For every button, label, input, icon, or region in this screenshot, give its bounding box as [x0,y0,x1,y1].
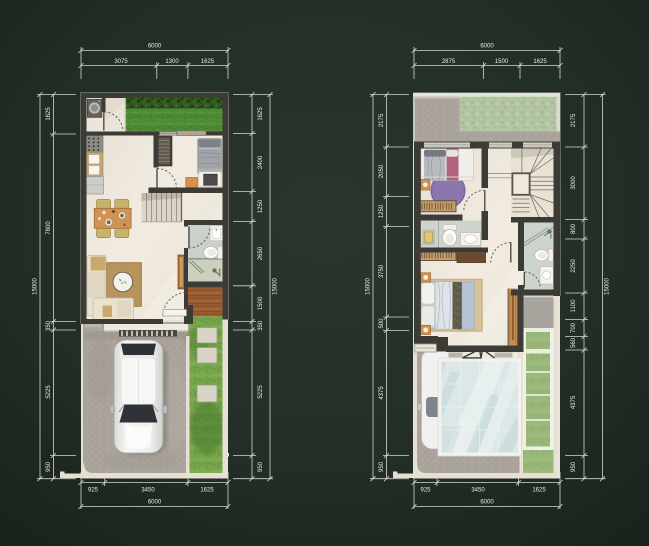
svg-text:1500: 1500 [495,59,509,65]
svg-text:560: 560 [571,337,577,348]
svg-text:2250: 2250 [571,259,577,273]
svg-text:2650: 2650 [258,246,264,260]
svg-text:2175: 2175 [571,113,577,127]
svg-text:1250: 1250 [379,204,385,218]
svg-text:5225: 5225 [258,385,264,399]
svg-text:3450: 3450 [141,488,155,494]
svg-text:3450: 3450 [471,488,485,494]
svg-text:1625: 1625 [46,107,52,121]
svg-text:1500: 1500 [258,296,264,310]
svg-text:6000: 6000 [148,500,162,506]
svg-text:500: 500 [379,318,385,329]
svg-text:800: 800 [571,223,577,234]
svg-text:1300: 1300 [165,59,179,65]
svg-text:15000: 15000 [273,277,279,294]
svg-text:1100: 1100 [571,299,577,313]
svg-text:1625: 1625 [533,59,547,65]
svg-text:1250: 1250 [258,199,264,213]
svg-text:4375: 4375 [571,395,577,409]
svg-text:15000: 15000 [605,277,611,294]
svg-text:2875: 2875 [442,59,456,65]
svg-text:950: 950 [46,461,52,472]
svg-text:2400: 2400 [258,155,264,169]
svg-text:6000: 6000 [148,44,162,50]
svg-text:3075: 3075 [114,59,128,65]
svg-text:350: 350 [258,320,264,331]
svg-text:6000: 6000 [480,44,494,50]
svg-text:3750: 3750 [379,264,385,278]
svg-text:950: 950 [571,461,577,472]
svg-text:1625: 1625 [201,59,215,65]
svg-text:1625: 1625 [258,107,264,121]
svg-text:7800: 7800 [46,221,52,235]
svg-text:700: 700 [571,322,577,333]
svg-text:6000: 6000 [480,500,494,506]
svg-text:1625: 1625 [200,488,214,494]
svg-text:1625: 1625 [532,488,546,494]
svg-text:15000: 15000 [33,277,39,294]
svg-text:3000: 3000 [571,176,577,190]
svg-text:925: 925 [420,488,431,494]
svg-text:5225: 5225 [46,385,52,399]
svg-text:15000: 15000 [366,277,372,294]
svg-text:4375: 4375 [379,386,385,400]
svg-text:925: 925 [88,488,99,494]
svg-text:950: 950 [258,461,264,472]
svg-text:350: 350 [46,320,52,331]
svg-text:2175: 2175 [379,113,385,127]
svg-text:950: 950 [379,461,385,472]
svg-text:2050: 2050 [379,164,385,178]
